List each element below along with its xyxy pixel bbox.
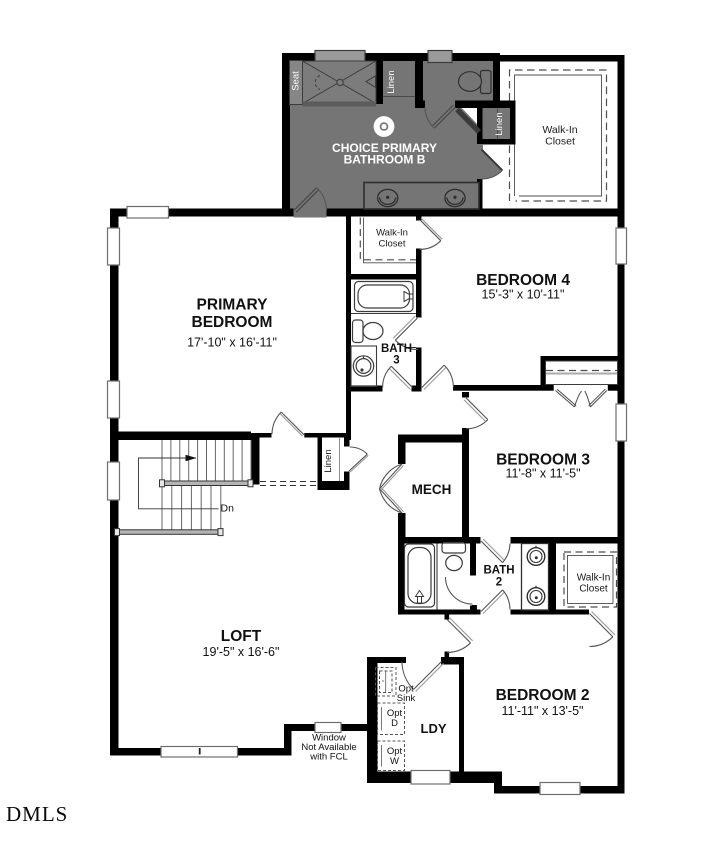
svg-text:Closet: Closet (379, 239, 406, 250)
svg-text:W: W (390, 756, 399, 767)
svg-text:with FCL: with FCL (309, 752, 347, 763)
svg-text:Walk-In: Walk-In (376, 228, 408, 239)
svg-text:DMLS: DMLS (6, 802, 68, 826)
svg-text:BEDROOM 2: BEDROOM 2 (496, 687, 590, 704)
svg-text:Linen: Linen (386, 70, 397, 93)
svg-text:Dn: Dn (221, 503, 235, 515)
svg-text:11'-11" x 13'-5": 11'-11" x 13'-5" (502, 704, 584, 718)
svg-text:15'-3" x 10'-11": 15'-3" x 10'-11" (482, 288, 565, 302)
svg-text:BATH: BATH (381, 343, 412, 355)
svg-text:Closet: Closet (545, 136, 575, 148)
svg-text:Linen: Linen (323, 449, 334, 472)
svg-text:2: 2 (496, 577, 502, 589)
svg-text:BEDROOM: BEDROOM (192, 314, 273, 331)
svg-text:LOFT: LOFT (221, 628, 262, 645)
svg-text:Walk-In: Walk-In (577, 573, 611, 584)
svg-text:11'-8" x 11'-5": 11'-8" x 11'-5" (505, 467, 580, 481)
svg-text:Seat: Seat (291, 71, 302, 91)
svg-text:Walk-In: Walk-In (542, 124, 577, 136)
svg-text:BATHROOM B: BATHROOM B (344, 153, 426, 167)
svg-text:D: D (391, 718, 398, 729)
svg-text:BEDROOM 4: BEDROOM 4 (476, 272, 570, 289)
svg-text:BATH: BATH (483, 565, 514, 577)
svg-text:17'-10" x 16'-11": 17'-10" x 16'-11" (187, 336, 277, 350)
svg-text:LDY: LDY (421, 721, 447, 736)
svg-text:19'-5" x 16'-6": 19'-5" x 16'-6" (203, 645, 280, 659)
svg-text:Linen: Linen (494, 112, 505, 135)
svg-text:MECH: MECH (412, 482, 452, 497)
svg-text:Sink: Sink (397, 693, 416, 704)
svg-text:3: 3 (393, 355, 399, 367)
svg-text:Closet: Closet (579, 584, 608, 595)
svg-text:PRIMARY: PRIMARY (197, 297, 269, 314)
